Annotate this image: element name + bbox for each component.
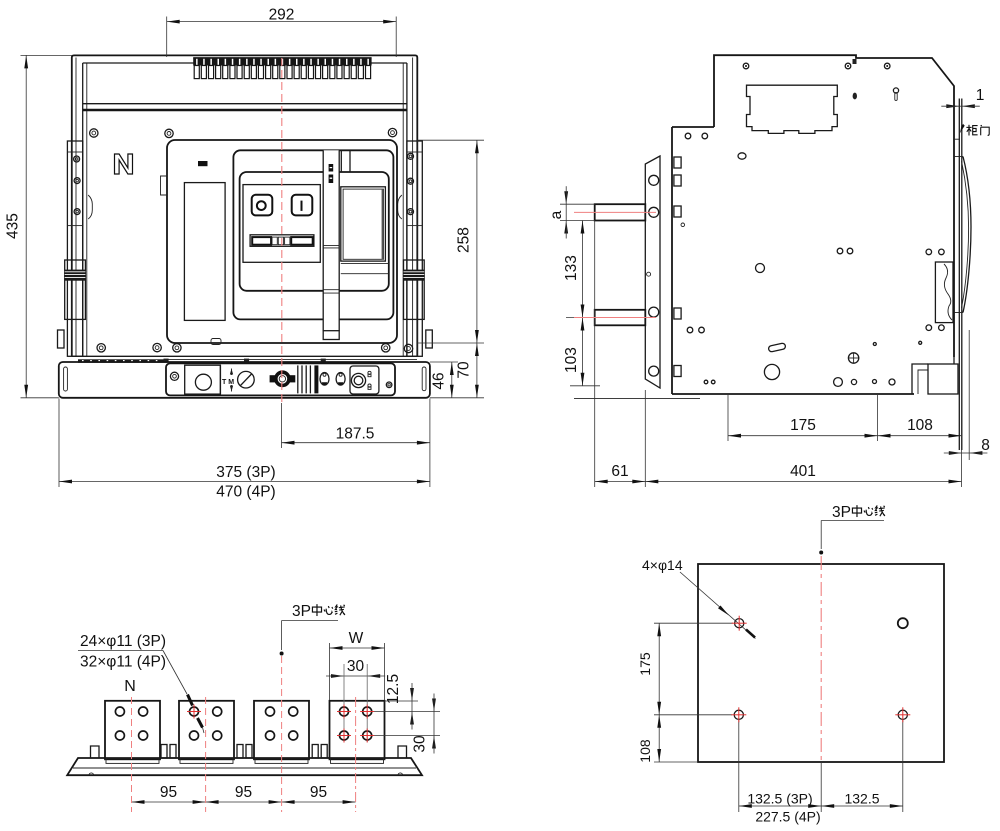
svg-text:32×φ11 (4P): 32×φ11 (4P) [80, 654, 166, 671]
svg-text:T M: T M [222, 379, 234, 386]
svg-text:108: 108 [907, 417, 933, 434]
svg-text:175: 175 [637, 652, 653, 676]
svg-text:132.5 (3P): 132.5 (3P) [747, 791, 812, 807]
svg-text:375 (3P): 375 (3P) [216, 464, 275, 481]
svg-text:W: W [349, 630, 364, 647]
svg-text:95: 95 [160, 784, 177, 801]
svg-text:3P: 3P [292, 603, 311, 620]
svg-text:103: 103 [563, 347, 580, 373]
svg-text:227.5 (4P): 227.5 (4P) [755, 809, 820, 825]
svg-text:187.5: 187.5 [336, 426, 375, 443]
svg-text:175: 175 [790, 417, 816, 434]
svg-text:70: 70 [456, 361, 473, 379]
svg-text:1: 1 [976, 87, 985, 104]
svg-text:30: 30 [412, 735, 429, 753]
svg-text:258: 258 [456, 227, 473, 253]
svg-text:108: 108 [637, 739, 653, 763]
svg-text:24×φ11 (3P): 24×φ11 (3P) [80, 633, 166, 650]
svg-text:435: 435 [5, 213, 22, 239]
svg-text:470 (4P): 470 (4P) [216, 484, 275, 501]
svg-text:8: 8 [981, 437, 990, 454]
svg-text:401: 401 [790, 463, 816, 480]
svg-text:133: 133 [563, 255, 580, 281]
svg-text:4×φ14: 4×φ14 [642, 557, 683, 573]
svg-text:95: 95 [235, 784, 252, 801]
svg-text:30: 30 [347, 658, 365, 675]
svg-text:95: 95 [310, 784, 327, 801]
svg-text:61: 61 [611, 463, 628, 480]
svg-text:N: N [124, 678, 136, 695]
svg-text:46: 46 [431, 372, 448, 389]
svg-text:12.5: 12.5 [385, 674, 402, 704]
svg-text:3P: 3P [832, 504, 851, 521]
svg-text:a: a [548, 210, 565, 219]
svg-text:132.5: 132.5 [844, 791, 879, 807]
svg-text:292: 292 [269, 7, 295, 24]
